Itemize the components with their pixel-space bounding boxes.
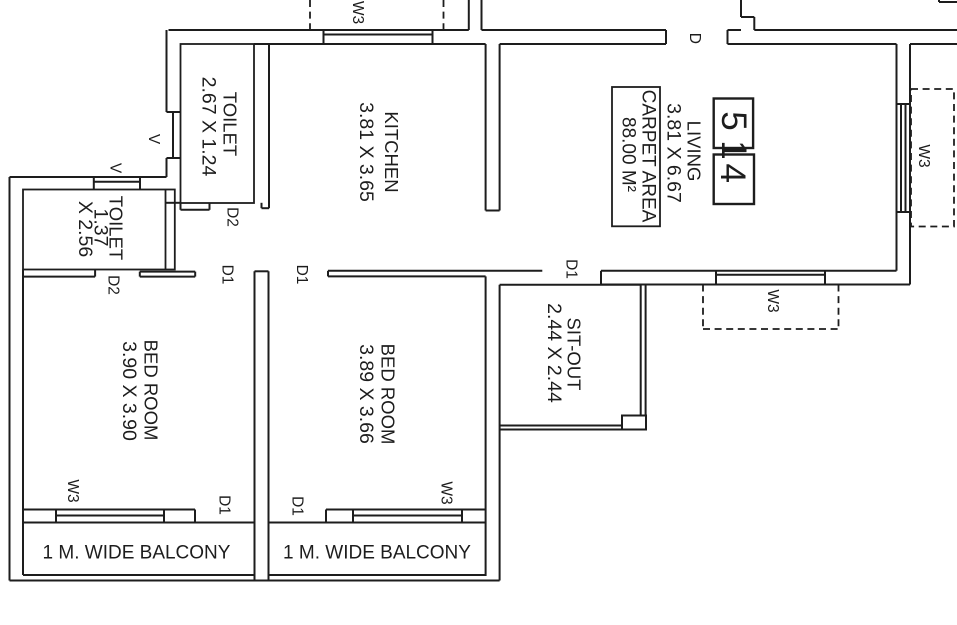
svg-text:D: D: [686, 33, 703, 44]
svg-text:1 M. WIDE BALCONY: 1 M. WIDE BALCONY: [43, 543, 231, 564]
svg-text:TOILET: TOILET: [220, 92, 241, 156]
svg-text:V: V: [145, 134, 162, 145]
svg-text:BED ROOM: BED ROOM: [378, 344, 399, 445]
svg-text:D1: D1: [216, 495, 233, 515]
svg-text:LIVING: LIVING: [684, 121, 705, 182]
svg-text:88.00 M²: 88.00 M²: [618, 117, 639, 192]
svg-text:5: 5: [714, 111, 753, 130]
svg-text:BED ROOM: BED ROOM: [141, 340, 162, 441]
svg-text:D2: D2: [105, 275, 122, 295]
svg-text:D1: D1: [293, 265, 310, 285]
svg-text:X 2.56: X 2.56: [74, 201, 96, 257]
svg-text:3.81 X 6.67: 3.81 X 6.67: [663, 103, 685, 203]
svg-text:D2: D2: [224, 207, 241, 227]
svg-text:4: 4: [713, 163, 752, 182]
svg-text:1: 1: [714, 140, 753, 159]
svg-text:V: V: [107, 163, 124, 174]
svg-text:CARPET AREA: CARPET AREA: [638, 90, 659, 223]
svg-text:D1: D1: [289, 496, 306, 516]
svg-text:W3: W3: [64, 479, 81, 502]
svg-text:1 M. WIDE BALCONY: 1 M. WIDE BALCONY: [283, 543, 471, 564]
svg-text:3.90 X 3.90: 3.90 X 3.90: [118, 341, 140, 441]
svg-text:KITCHEN: KITCHEN: [381, 111, 402, 192]
svg-text:W3: W3: [764, 289, 781, 312]
svg-text:3.89 X 3.66: 3.89 X 3.66: [355, 344, 377, 444]
svg-text:W3: W3: [349, 1, 366, 24]
svg-text:W3: W3: [438, 481, 455, 504]
svg-text:W3: W3: [915, 144, 932, 167]
svg-text:D1: D1: [563, 259, 580, 279]
svg-text:2.67 X 1.24: 2.67 X 1.24: [198, 77, 220, 177]
svg-text:D1: D1: [219, 265, 236, 285]
svg-text:SIT-OUT: SIT-OUT: [564, 318, 585, 391]
svg-text:2.44 X 2.44: 2.44 X 2.44: [543, 303, 565, 403]
svg-text:3.81 X 3.65: 3.81 X 3.65: [355, 102, 377, 202]
